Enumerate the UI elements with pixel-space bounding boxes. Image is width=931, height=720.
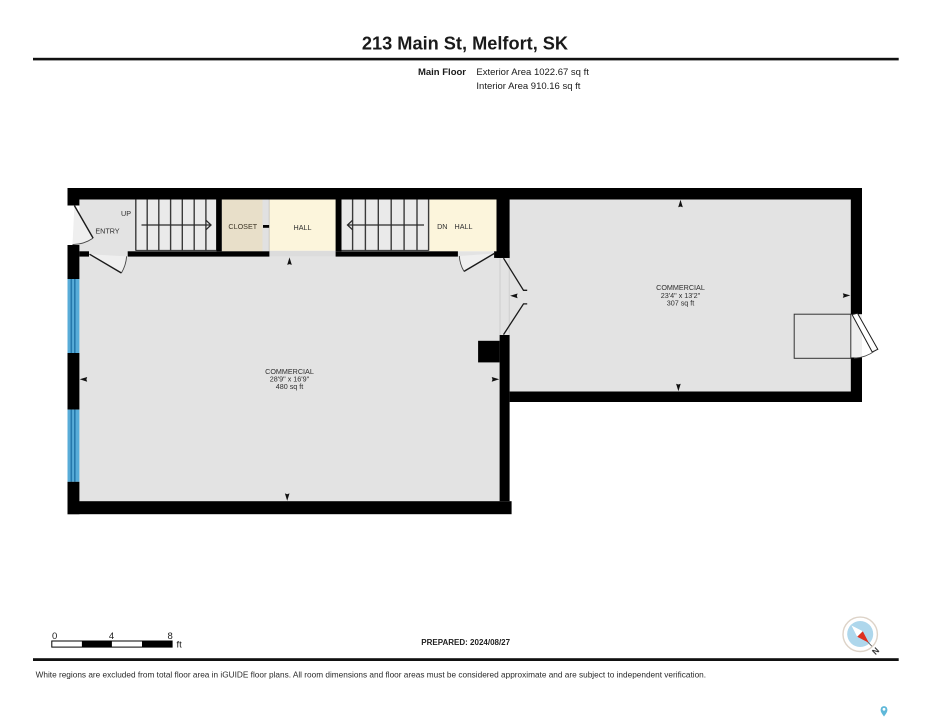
svg-text:HALL: HALL [294, 223, 312, 232]
svg-text:480 sq ft: 480 sq ft [276, 382, 304, 391]
svg-text:307 sq ft: 307 sq ft [667, 299, 695, 308]
svg-text:Exterior Area 1022.67 sq ft: Exterior Area 1022.67 sq ft [476, 67, 589, 78]
svg-text:White regions are excluded fro: White regions are excluded from total fl… [36, 670, 706, 679]
svg-text:Interior Area 910.16 sq ft: Interior Area 910.16 sq ft [476, 81, 580, 92]
svg-text:ft: ft [177, 640, 183, 651]
svg-text:DN: DN [437, 222, 447, 231]
svg-text:Main Floor: Main Floor [418, 67, 466, 78]
svg-text:213 Main St, Melfort, SK: 213 Main St, Melfort, SK [362, 34, 568, 54]
svg-text:CLOSET: CLOSET [228, 222, 257, 231]
svg-text:HALL: HALL [455, 222, 473, 231]
svg-text:4: 4 [109, 631, 114, 642]
svg-text:ENTRY: ENTRY [95, 227, 119, 236]
svg-text:8: 8 [168, 631, 173, 642]
svg-text:UP: UP [121, 209, 131, 218]
svg-text:0: 0 [52, 631, 57, 642]
svg-text:PREPARED: 2024/08/27: PREPARED: 2024/08/27 [421, 638, 510, 647]
